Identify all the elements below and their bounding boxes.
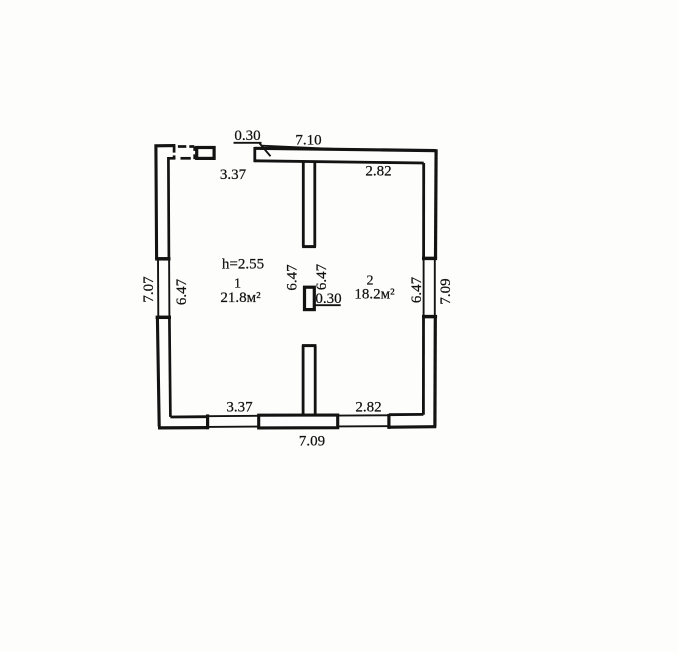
svg-text:7.09: 7.09 xyxy=(299,434,325,450)
svg-text:3.37: 3.37 xyxy=(220,167,247,183)
svg-text:0.30: 0.30 xyxy=(234,128,260,144)
svg-text:2.82: 2.82 xyxy=(365,163,391,179)
svg-text:7.09: 7.09 xyxy=(438,278,454,304)
svg-text:7.10: 7.10 xyxy=(295,132,321,148)
svg-text:h=2.55: h=2.55 xyxy=(222,257,264,273)
svg-text:21.8м²: 21.8м² xyxy=(220,290,261,306)
svg-text:6.47: 6.47 xyxy=(409,276,425,303)
svg-text:6.47: 6.47 xyxy=(285,264,301,291)
svg-text:2.82: 2.82 xyxy=(355,400,381,416)
svg-text:7.07: 7.07 xyxy=(141,276,157,303)
svg-text:6.47: 6.47 xyxy=(314,263,330,290)
svg-text:18.2м²: 18.2м² xyxy=(354,287,395,303)
svg-text:0.30: 0.30 xyxy=(315,291,341,307)
svg-text:3.37: 3.37 xyxy=(226,400,253,416)
svg-text:6.47: 6.47 xyxy=(174,278,190,305)
